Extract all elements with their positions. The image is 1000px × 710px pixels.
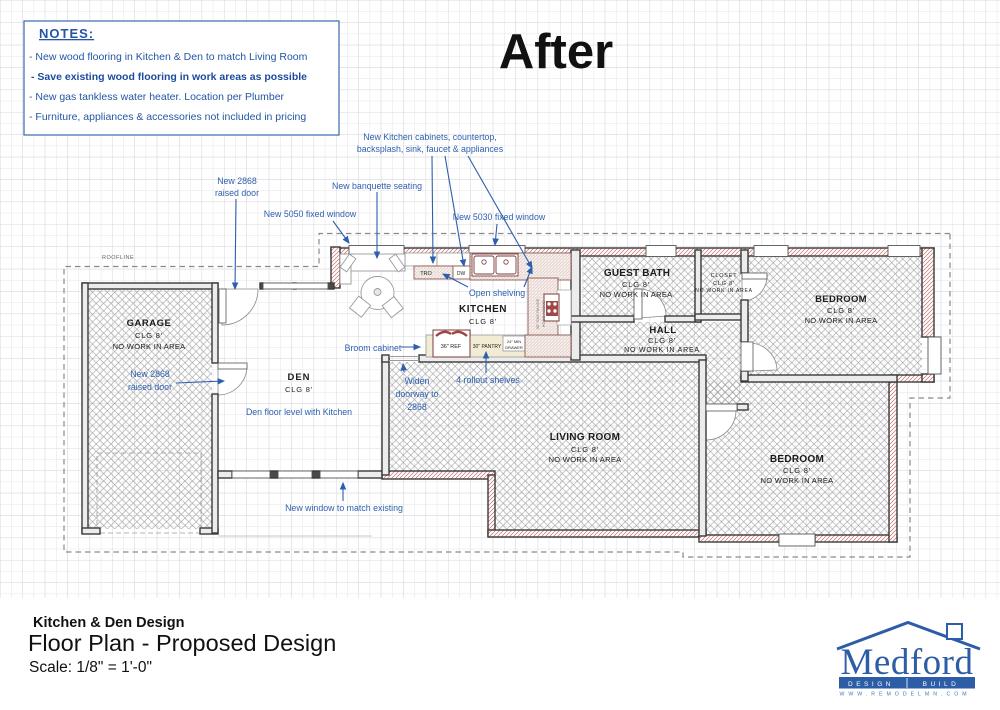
svg-text:New 2868: New 2868: [217, 176, 257, 186]
svg-text:2868: 2868: [407, 402, 427, 412]
svg-text:ROOFLINE: ROOFLINE: [102, 255, 134, 261]
svg-text:- Furniture, appliances & acce: - Furniture, appliances & accessories no…: [29, 111, 306, 123]
svg-text:HOOD ABOVE: HOOD ABOVE: [541, 300, 546, 327]
svg-text:NO WORK IN AREA: NO WORK IN AREA: [624, 347, 700, 354]
svg-text:CLG 8': CLG 8': [827, 306, 855, 315]
svg-text:NO WORK IN AREA: NO WORK IN AREA: [805, 316, 878, 325]
svg-text:WWW.REMODELMN.COM: WWW.REMODELMN.COM: [839, 692, 970, 698]
svg-text:4 rollout shelves: 4 rollout shelves: [456, 375, 520, 385]
svg-text:KITCHEN: KITCHEN: [459, 304, 507, 315]
svg-text:CLG 8': CLG 8': [783, 466, 811, 475]
svg-text:BUILD: BUILD: [923, 681, 960, 688]
svg-text:DESIGN: DESIGN: [848, 681, 894, 688]
svg-text:30" PANTRY: 30" PANTRY: [473, 344, 502, 350]
svg-text:raised door: raised door: [128, 382, 172, 392]
svg-text:Den floor level with Kitchen: Den floor level with Kitchen: [246, 407, 352, 417]
svg-text:30" GAS RANGE: 30" GAS RANGE: [535, 298, 540, 329]
svg-text:CLG 8': CLG 8': [469, 317, 497, 326]
svg-text:GUEST BATH: GUEST BATH: [604, 268, 670, 279]
svg-text:CLG 8': CLG 8': [571, 445, 599, 454]
svg-text:CLG 8': CLG 8': [648, 336, 676, 345]
svg-text:doorway to: doorway to: [395, 389, 438, 399]
svg-text:backsplash, sink, faucet & app: backsplash, sink, faucet & appliances: [357, 144, 504, 154]
svg-text:Open shelving: Open shelving: [469, 288, 525, 298]
svg-text:NO WORK IN AREA: NO WORK IN AREA: [549, 455, 622, 464]
svg-text:Kitchen & Den Design: Kitchen & Den Design: [33, 615, 184, 631]
svg-text:NOTES:: NOTES:: [39, 26, 94, 41]
svg-text:BEDROOM: BEDROOM: [815, 294, 867, 305]
svg-text:- New wood flooring in Kitchen: - New wood flooring in Kitchen & Den to …: [29, 51, 308, 63]
svg-text:After: After: [499, 25, 613, 79]
svg-text:NO WORK IN AREA: NO WORK IN AREA: [695, 288, 753, 294]
svg-text:CLOSET: CLOSET: [711, 273, 738, 279]
svg-text:DRAWER: DRAWER: [505, 345, 523, 350]
svg-text:Widen: Widen: [405, 376, 430, 386]
svg-text:NO WORK IN AREA: NO WORK IN AREA: [761, 476, 834, 485]
svg-text:CLG 8': CLG 8': [713, 281, 735, 287]
svg-text:raised door: raised door: [215, 188, 259, 198]
svg-text:24" MIN: 24" MIN: [507, 339, 521, 344]
svg-text:NO WORK IN AREA: NO WORK IN AREA: [113, 342, 186, 351]
svg-text:GARAGE: GARAGE: [127, 318, 172, 329]
svg-text:Scale: 1/8" = 1'-0": Scale: 1/8" = 1'-0": [29, 659, 152, 676]
svg-text:TRO: TRO: [420, 271, 432, 277]
svg-text:- New gas tankless water heate: - New gas tankless water heater. Locatio…: [29, 91, 285, 103]
svg-text:CLG 8': CLG 8': [285, 385, 313, 394]
svg-text:HALL: HALL: [649, 325, 676, 336]
svg-text:Floor Plan - Proposed Design: Floor Plan - Proposed Design: [28, 630, 336, 656]
svg-text:CLG 8': CLG 8': [135, 331, 163, 340]
svg-text:Medford: Medford: [841, 642, 974, 683]
svg-text:36" REF: 36" REF: [441, 344, 462, 350]
svg-text:DEN: DEN: [287, 372, 310, 383]
svg-text:NO WORK IN AREA: NO WORK IN AREA: [600, 290, 673, 299]
svg-text:New Kitchen cabinets, countert: New Kitchen cabinets, countertop,: [363, 132, 497, 142]
svg-text:Broom cabinet: Broom cabinet: [345, 343, 402, 353]
svg-text:BEDROOM: BEDROOM: [770, 454, 824, 465]
svg-text:- Save existing wood flooring: - Save existing wood flooring in work ar…: [31, 71, 307, 83]
svg-text:LIVING ROOM: LIVING ROOM: [550, 432, 621, 443]
svg-text:DW: DW: [457, 271, 466, 277]
svg-text:CLG 8': CLG 8': [622, 280, 650, 289]
svg-text:New 2868: New 2868: [130, 369, 170, 379]
svg-text:New 5050 fixed window: New 5050 fixed window: [264, 209, 357, 219]
svg-text:New window to match existing: New window to match existing: [285, 503, 403, 513]
svg-text:New banquette seating: New banquette seating: [332, 181, 422, 191]
svg-text:New 5030 fixed window: New 5030 fixed window: [453, 212, 546, 222]
